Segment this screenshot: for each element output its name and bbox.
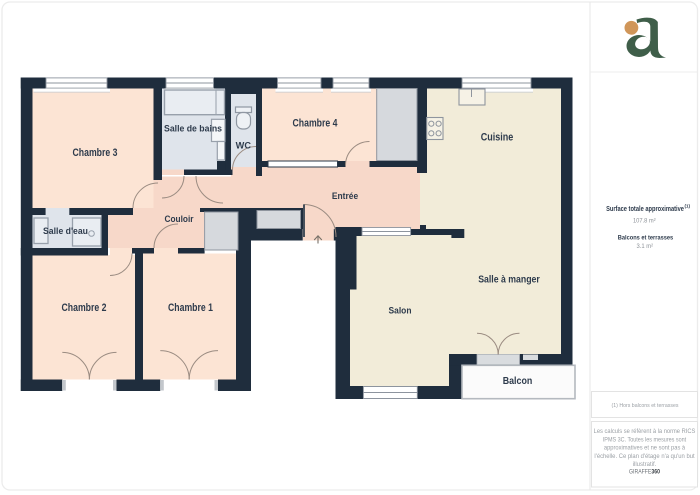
svg-text:GIRAFFE360: GIRAFFE360 (629, 469, 660, 475)
svg-text:Salon: Salon (389, 305, 412, 315)
svg-text:Chambre 1: Chambre 1 (168, 302, 213, 314)
svg-text:Chambre 3: Chambre 3 (73, 147, 118, 159)
svg-text:approximatives et ne sont pas: approximatives et ne sont pas à (604, 446, 686, 452)
svg-text:Salle à manger: Salle à manger (478, 273, 540, 285)
svg-text:Salle d'eau: Salle d'eau (43, 226, 88, 236)
svg-text:Balcons et terrasses: Balcons et terrasses (618, 235, 673, 241)
svg-text:Couloir: Couloir (165, 214, 195, 224)
svg-text:IPMS 3C. Toutes les mesures so: IPMS 3C. Toutes les mesures sont (603, 437, 687, 443)
svg-text:Balcon: Balcon (503, 375, 533, 387)
svg-text:3.1 m²: 3.1 m² (636, 244, 653, 250)
svg-text:Chambre 2: Chambre 2 (62, 302, 107, 314)
svg-text:illustratif.: illustratif. (633, 462, 657, 468)
svg-text:Cuisine: Cuisine (481, 132, 514, 144)
svg-text:Les calculs se réfèrent à la n: Les calculs se réfèrent à la norme RICS (594, 429, 696, 435)
svg-text:l'échelle. Ce plan d'étage n'a: l'échelle. Ce plan d'étage n'a qu'un but (594, 454, 695, 460)
svg-text:Entrée: Entrée (332, 191, 358, 201)
svg-text:(1): (1) (685, 204, 691, 209)
svg-text:Chambre 4: Chambre 4 (293, 117, 338, 129)
svg-text:WC: WC (236, 140, 252, 150)
svg-text:Surface totale approximative: Surface totale approximative (606, 206, 684, 214)
svg-text:Salle de bains: Salle de bains (164, 123, 222, 133)
svg-text:(1) Hors balcons et terrasses: (1) Hors balcons et terrasses (611, 403, 678, 409)
svg-text:107.8 m²: 107.8 m² (633, 218, 656, 224)
